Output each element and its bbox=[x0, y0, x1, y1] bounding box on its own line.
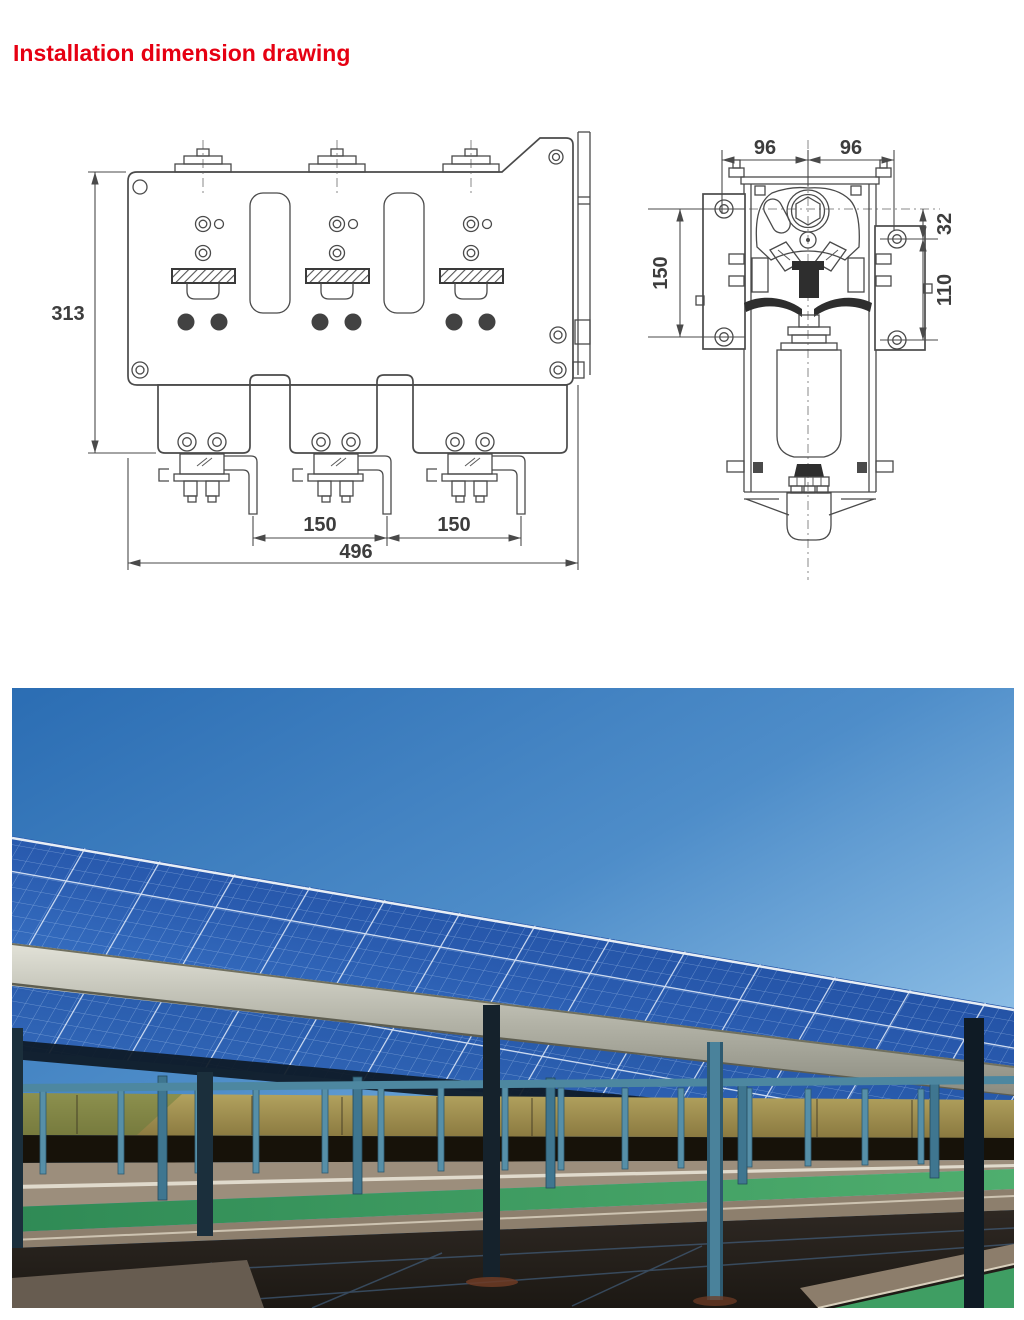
dim-label-half-right: 96 bbox=[840, 137, 862, 159]
side-strip bbox=[573, 132, 590, 378]
front-view-drawing: 313 150 150 496 bbox=[51, 132, 590, 570]
solar-carport-photo bbox=[12, 688, 1014, 1308]
side-view-drawing: 96 96 150 32 110 bbox=[648, 137, 956, 580]
dim-label-height: 313 bbox=[51, 303, 84, 325]
dimension-150-pair: 150 150 bbox=[253, 514, 521, 546]
left-mounting-plate bbox=[696, 194, 745, 349]
dim-label-half-left: 96 bbox=[754, 137, 776, 159]
dim-label-offset-top: 32 bbox=[934, 213, 956, 235]
page: { "title": { "text": "Installation dimen… bbox=[0, 0, 1024, 1320]
dim-label-hole-spacing-right: 110 bbox=[934, 274, 956, 306]
dim-label-hole-spacing: 150 bbox=[650, 256, 672, 289]
page-title: Installation dimension drawing bbox=[13, 40, 350, 67]
installation-dimension-drawing: 313 150 150 496 bbox=[0, 95, 1024, 595]
dim-label-total-width: 496 bbox=[339, 541, 372, 563]
dim-label-spacing-left: 150 bbox=[303, 514, 336, 536]
dim-label-spacing-right: 150 bbox=[437, 514, 470, 536]
